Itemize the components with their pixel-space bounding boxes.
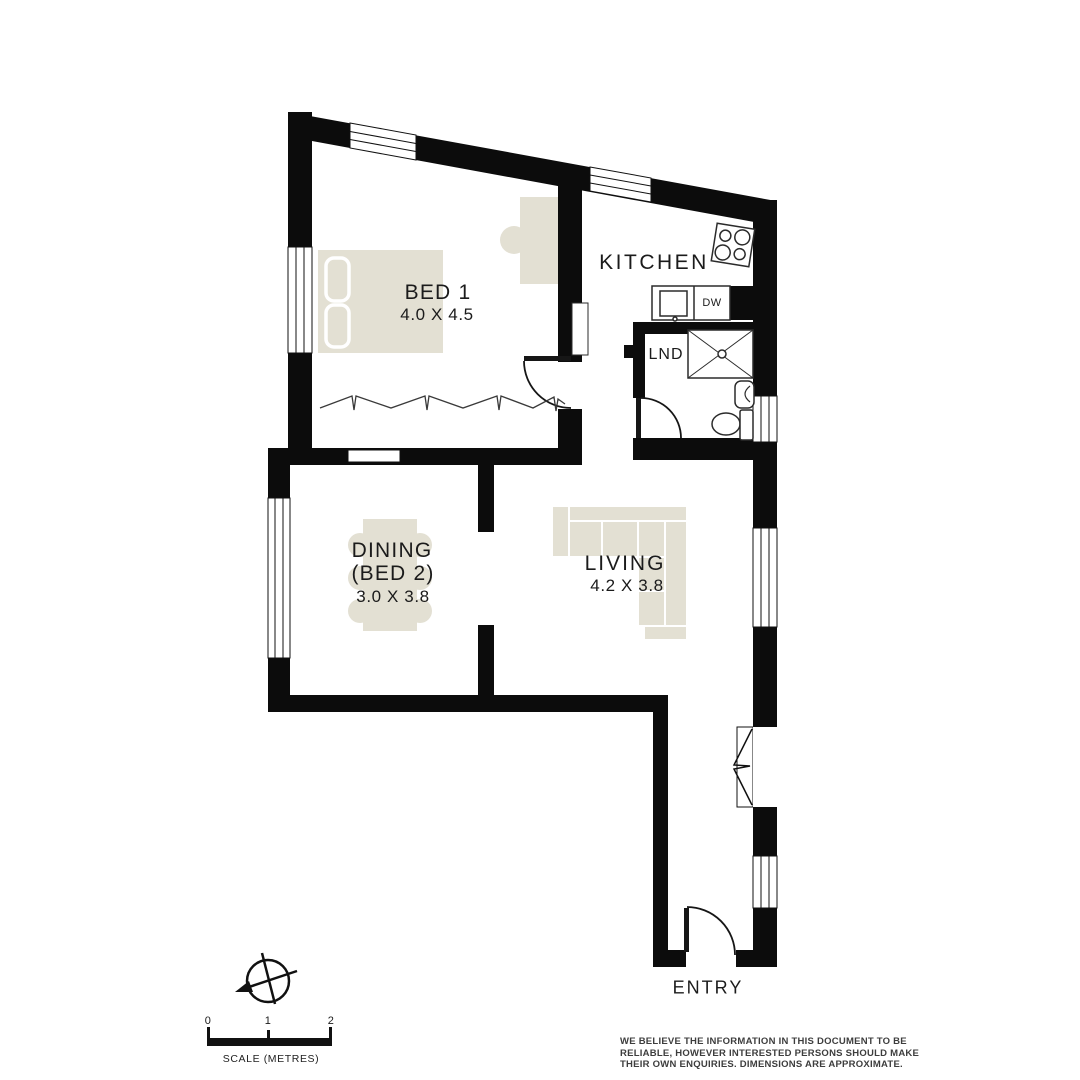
window-living-right	[753, 528, 777, 627]
wall-bed1-door-stub	[558, 409, 582, 465]
niche	[572, 303, 588, 355]
disclaimer-text: WE BELIEVE THE INFORMATION IN THIS DOCUM…	[620, 1036, 919, 1071]
dining-alt-label: (BED 2)	[351, 562, 434, 586]
door-entry	[684, 907, 735, 955]
laundry-label: LND	[648, 346, 683, 364]
basin	[735, 381, 754, 408]
disclaimer-line: THEIR OWN ENQUIRIES. DIMENSIONS ARE APPR…	[620, 1059, 919, 1071]
stove	[711, 223, 754, 266]
floor-plan-drawing	[0, 0, 1080, 1080]
door-bifold-closet	[734, 727, 777, 807]
window-interior-inset	[348, 450, 400, 462]
sink	[660, 291, 687, 316]
wall-entry-bottom-left	[653, 950, 686, 967]
wall-bed1-bottom	[268, 448, 582, 465]
wall-bottom	[268, 695, 668, 712]
shower	[688, 330, 753, 378]
wall-door-jamb	[624, 345, 633, 358]
kitchen-label: KITCHEN	[599, 251, 709, 275]
door-laundry	[636, 398, 681, 438]
window-entry-right	[753, 856, 777, 908]
scale-bar	[207, 1027, 332, 1046]
window-lnd-right	[753, 396, 777, 442]
living-dimensions: 4.2 X 3.8	[590, 576, 663, 596]
scale-tick-1: 1	[265, 1015, 272, 1027]
bed1-label: BED 1	[405, 281, 472, 305]
disclaimer-line: WE BELIEVE THE INFORMATION IN THIS DOCUM…	[620, 1036, 919, 1048]
dining-dimensions: 3.0 X 3.8	[356, 587, 429, 607]
floor-plan-page: KITCHEN BED 1 4.0 X 4.5 LND DW DINING (B…	[0, 0, 1080, 1080]
scale-bar-label: SCALE (METRES)	[223, 1053, 320, 1065]
scale-tick-2: 2	[328, 1015, 335, 1027]
window-bed1-left	[288, 247, 312, 353]
disclaimer-line: RELIABLE, HOWEVER INTERESTED PERSONS SHO…	[620, 1048, 919, 1060]
window-dining-left	[268, 498, 290, 658]
toilet	[712, 410, 753, 440]
dishwasher-label: DW	[702, 297, 721, 309]
north-arrow-icon	[235, 953, 297, 1004]
bed1-dimensions: 4.0 X 4.5	[400, 305, 473, 325]
wall-lnd-bottom	[633, 438, 753, 460]
entry-label: ENTRY	[673, 978, 744, 999]
wall-corridor-left	[653, 695, 668, 967]
window-top-2	[590, 167, 651, 202]
wall-kitchen-counter-side	[730, 286, 753, 320]
dining-label: DINING	[352, 539, 433, 563]
wardrobe-rail	[320, 396, 565, 411]
window-top-1	[350, 123, 416, 160]
faucet	[673, 317, 677, 321]
living-label: LIVING	[585, 552, 666, 576]
wall-dining-living-top	[478, 465, 494, 532]
scale-tick-0: 0	[205, 1015, 212, 1027]
